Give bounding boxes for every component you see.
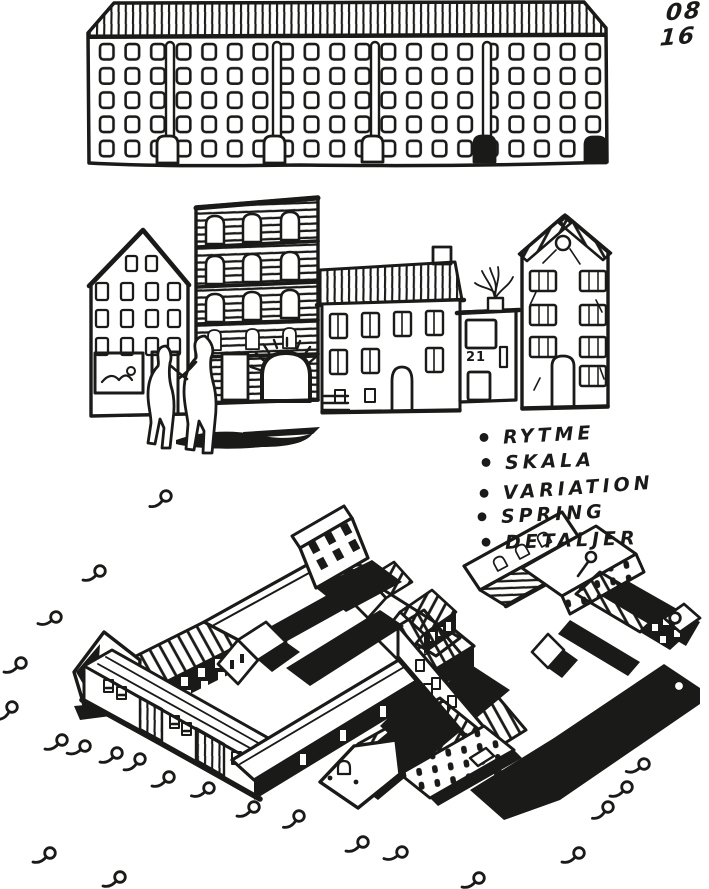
tall-gabled-house [519, 215, 611, 409]
striped-tall-building [196, 197, 318, 404]
tree-symbol [67, 739, 91, 756]
tree-symbol [45, 735, 67, 750]
roof-finial [586, 552, 596, 562]
tree-symbol [237, 802, 259, 817]
infill-building-21 [457, 267, 519, 402]
tree-symbol [103, 872, 125, 887]
tree-symbol [38, 609, 62, 627]
principle-label: SPRING [500, 501, 606, 528]
principle-skala: • SKALA [478, 448, 596, 476]
tree-symbol [152, 772, 174, 787]
principle-label: RYTME [502, 422, 595, 449]
tree-symbol [626, 757, 649, 774]
tree-symbol [149, 490, 172, 507]
bullet-icon: • [476, 489, 493, 500]
sketchbook-page: 08 16 • RYTME • SKALA • VARIATION • SPRI… [0, 0, 709, 889]
tree-symbol [562, 848, 584, 863]
tree-symbol [0, 701, 19, 720]
right-courtyard-block [320, 512, 700, 820]
tree-symbol [590, 801, 614, 819]
tree-symbol [4, 658, 26, 673]
tree-symbol [100, 748, 122, 763]
side-door [222, 354, 248, 400]
date-note: 08 16 [666, 0, 702, 50]
apartment-block-elevation [88, 2, 607, 166]
tree-symbol [462, 873, 484, 888]
arched-door [392, 367, 412, 411]
bullet-icon: • [478, 458, 494, 469]
tree-symbol [191, 782, 214, 798]
tree-symbol [33, 848, 55, 863]
roof-planter [488, 298, 503, 311]
plant-branches [475, 267, 513, 298]
principle-label: SKALA [505, 449, 596, 474]
bullet-icon: • [476, 433, 492, 444]
date-note-line2: 16 [659, 23, 703, 52]
entrance-door [552, 356, 574, 407]
rowhouse-striped-roof [317, 247, 464, 413]
tree-symbol [346, 837, 368, 852]
date-note-line1: 08 [665, 0, 703, 27]
street-elevation [89, 197, 611, 453]
sketch-canvas [0, 0, 709, 889]
hatched-roof-band [88, 2, 606, 36]
bullet-icon: • [478, 538, 494, 549]
tree-symbol [83, 566, 105, 581]
tree-symbol [610, 782, 632, 797]
bullet-icon: • [474, 513, 490, 524]
tree-symbol [281, 810, 305, 828]
gabled-house-left [89, 230, 189, 416]
tree-symbol [384, 844, 408, 862]
tree-symbol [123, 753, 147, 770]
principle-label: DETALJER [505, 527, 639, 554]
house-number: 21 [466, 350, 486, 365]
